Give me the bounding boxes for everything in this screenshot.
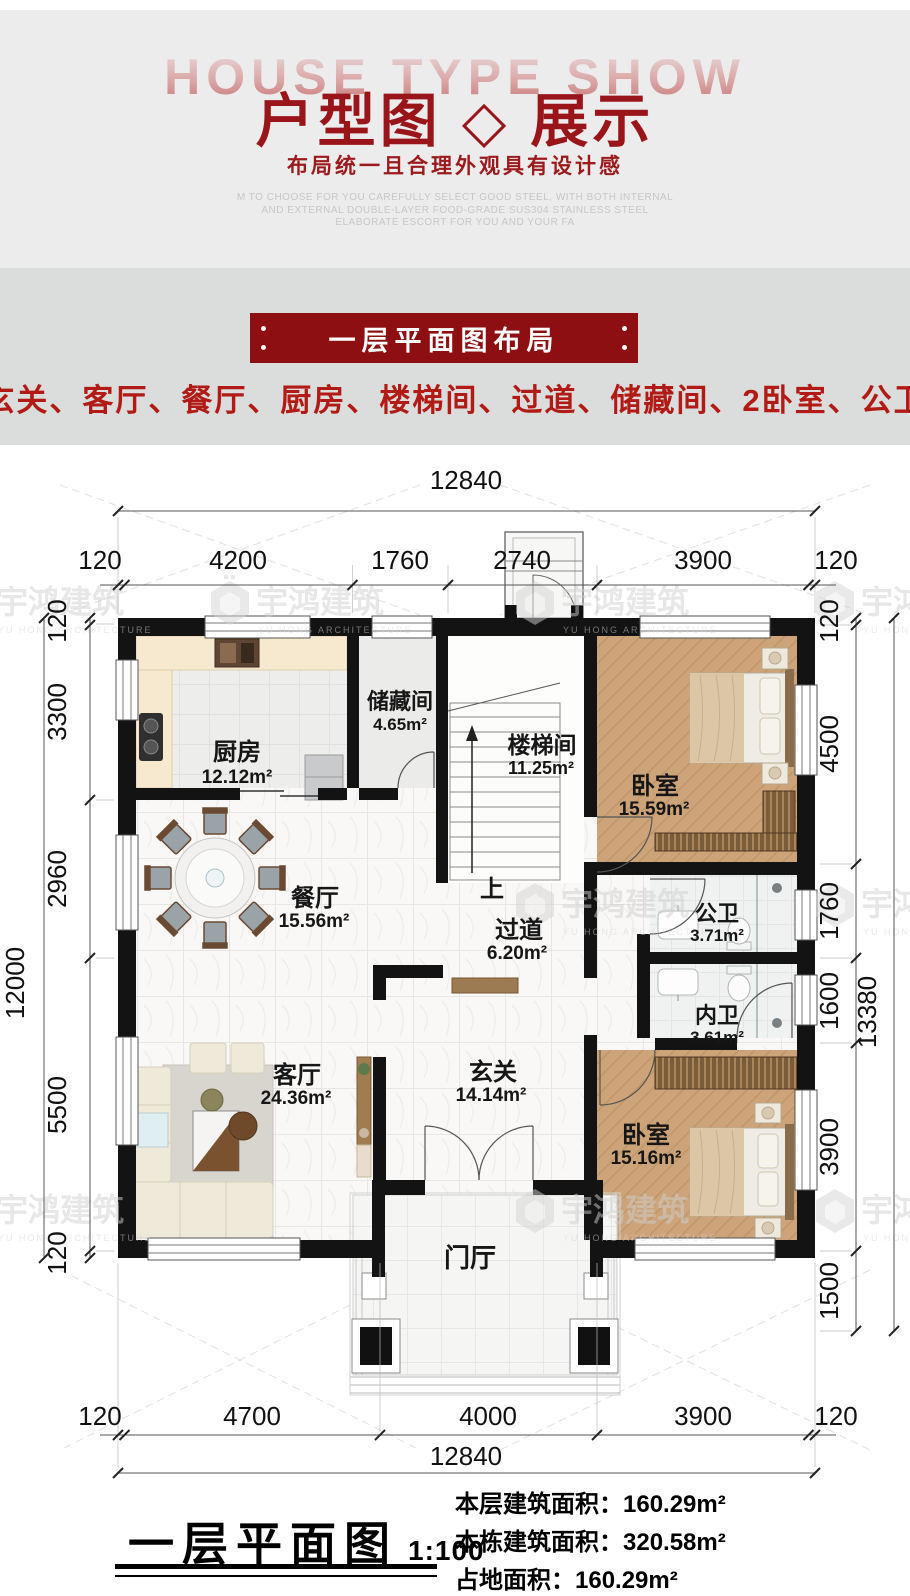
title-underline-thin bbox=[115, 1575, 437, 1577]
svg-text:15.56m²: 15.56m² bbox=[279, 911, 350, 932]
section-banner: 一层平面图布局 bbox=[250, 313, 638, 363]
svg-text:15.16m²: 15.16m² bbox=[611, 1148, 682, 1169]
banner-dot bbox=[622, 326, 627, 331]
window bbox=[116, 835, 138, 930]
svg-text:YU HONG ARCHITECTURE: YU HONG ARCHITECTURE bbox=[563, 1233, 718, 1243]
svg-text:卧室: 卧室 bbox=[622, 1121, 670, 1149]
section-band: 一层平面图布局 门厅、玄关、客厅、餐厅、厨房、楼梯间、过道、储藏间、2卧室、公卫… bbox=[0, 268, 910, 445]
svg-text:门厅: 门厅 bbox=[444, 1243, 496, 1273]
svg-text:YU HONG ARCHITECTURE: YU HONG ARCHITECTURE bbox=[863, 927, 910, 937]
stat-land-area: 占地面积：160.29m² bbox=[455, 1562, 726, 1596]
stair-up-label: 上 bbox=[480, 876, 504, 903]
page-subtitle: 布局统一且合理外观具有设计感 bbox=[0, 150, 910, 180]
room-label-porch: 门厅 bbox=[444, 1243, 496, 1273]
svg-text:内卫: 内卫 bbox=[695, 1003, 739, 1028]
room-list-wrap: 门厅、玄关、客厅、餐厅、厨房、楼梯间、过道、储藏间、2卧室、公卫、内卫 bbox=[0, 378, 910, 424]
shower-head bbox=[772, 1018, 782, 1028]
dim-left: 120 3300 2960 5500 120 12000 bbox=[0, 599, 95, 1274]
svg-text:宇鸿建筑: 宇鸿建筑 bbox=[861, 886, 910, 922]
watermark: 宇鸿建筑 YU HONG ARCHITECTURE bbox=[816, 1189, 910, 1243]
dim-top: 12840 120 4200 1760 2740 3900 120 bbox=[78, 465, 857, 590]
svg-text:6.20m²: 6.20m² bbox=[487, 943, 547, 964]
svg-text:120: 120 bbox=[42, 599, 72, 642]
svg-text:YU HONG ARCHITECTURE: YU HONG ARCHITECTURE bbox=[0, 1233, 153, 1243]
svg-text:宇鸿建筑: 宇鸿建筑 bbox=[561, 886, 689, 922]
svg-text:过道: 过道 bbox=[495, 916, 543, 944]
room-list: 门厅、玄关、客厅、餐厅、厨房、楼梯间、过道、储藏间、2卧室、公卫、内卫 bbox=[0, 378, 910, 424]
desc-line-1: M TO CHOOSE FOR YOU CAREFULLY SELECT GOO… bbox=[0, 192, 910, 205]
porch-column bbox=[360, 1327, 392, 1365]
room-label-storage: 储藏间 4.65m² bbox=[367, 689, 433, 734]
side-table bbox=[136, 1113, 168, 1147]
svg-text:120: 120 bbox=[78, 545, 121, 575]
plan-name: 一层平面图 bbox=[128, 1518, 398, 1570]
watermark: 宇鸿建筑 YU HONG ARCHITECTURE bbox=[0, 584, 153, 635]
dining-furniture bbox=[145, 808, 285, 948]
svg-text:宇鸿建筑: 宇鸿建筑 bbox=[861, 584, 910, 620]
floor-plan-svg: 宇鸿建筑 YU HONG ARCHITECTURE 宇鸿建筑 YU HONG A… bbox=[0, 445, 910, 1480]
svg-text:4000: 4000 bbox=[459, 1401, 517, 1431]
ottoman bbox=[190, 1043, 226, 1073]
svg-text:宇鸿建筑: 宇鸿建筑 bbox=[561, 1192, 689, 1228]
top-strip bbox=[0, 0, 910, 10]
svg-text:YU HONG ARCHITECTURE: YU HONG ARCHITECTURE bbox=[863, 1233, 910, 1243]
desc-line-3: ELABORATE ESCORT FOR YOU AND YOUR FA bbox=[0, 217, 910, 230]
shower-head bbox=[772, 883, 782, 893]
svg-text:客厅: 客厅 bbox=[273, 1061, 321, 1089]
svg-text:12000: 12000 bbox=[0, 947, 30, 1019]
dim-bottom: 120 4700 4000 3900 120 12840 bbox=[78, 1401, 857, 1478]
english-description: M TO CHOOSE FOR YOU CAREFULLY SELECT GOO… bbox=[0, 192, 910, 230]
room-label-stairwell: 楼梯间 11.25m² bbox=[508, 732, 577, 778]
svg-text:3300: 3300 bbox=[42, 683, 72, 741]
wardrobe bbox=[655, 1057, 797, 1089]
svg-text:卧室: 卧室 bbox=[631, 772, 679, 800]
svg-text:3900: 3900 bbox=[674, 1401, 732, 1431]
svg-text:玄关: 玄关 bbox=[469, 1058, 517, 1086]
svg-text:120: 120 bbox=[814, 599, 844, 642]
svg-text:宇鸿建筑: 宇鸿建筑 bbox=[561, 584, 689, 620]
svg-text:YU HONG ARCHITECTURE: YU HONG ARCHITECTURE bbox=[563, 625, 718, 635]
footer: 一层平面图1:100 本层建筑面积：160.29m² 本栋建筑面积：320.58… bbox=[0, 1480, 910, 1596]
svg-text:YU HONG ARCHITECTURE: YU HONG ARCHITECTURE bbox=[0, 625, 153, 635]
area-stats: 本层建筑面积：160.29m² 本栋建筑面积：320.58m² 占地面积：160… bbox=[455, 1486, 726, 1596]
svg-text:宇鸿建筑: 宇鸿建筑 bbox=[0, 1192, 124, 1228]
svg-text:厨房: 厨房 bbox=[213, 738, 261, 766]
entry-console bbox=[452, 978, 518, 993]
wardrobe bbox=[763, 791, 795, 833]
svg-text:3.61m²: 3.61m² bbox=[690, 1028, 744, 1047]
banner-dot bbox=[261, 326, 266, 331]
svg-text:3900: 3900 bbox=[814, 1118, 844, 1176]
svg-text:11.25m²: 11.25m² bbox=[508, 758, 574, 778]
svg-text:15.59m²: 15.59m² bbox=[619, 799, 690, 820]
banner-dot bbox=[261, 345, 266, 350]
poster-page: HOUSE TYPE SHOW 户型图 ◇ 展示 布局统一且合理外观具有设计感 … bbox=[0, 0, 910, 1596]
header: HOUSE TYPE SHOW 户型图 ◇ 展示 布局统一且合理外观具有设计感 … bbox=[0, 0, 910, 268]
svg-text:12840: 12840 bbox=[430, 1441, 502, 1471]
svg-text:宇鸿建筑: 宇鸿建筑 bbox=[861, 1192, 910, 1228]
svg-text:120: 120 bbox=[814, 545, 857, 575]
svg-text:3900: 3900 bbox=[674, 545, 732, 575]
room-label-hallway: 过道 6.20m² bbox=[487, 916, 547, 964]
svg-text:120: 120 bbox=[78, 1401, 121, 1431]
svg-text:14.14m²: 14.14m² bbox=[456, 1085, 527, 1106]
page-title: 户型图 ◇ 展示 bbox=[0, 74, 910, 158]
svg-text:储藏间: 储藏间 bbox=[367, 689, 433, 714]
svg-text:4.65m²: 4.65m² bbox=[373, 715, 427, 734]
svg-text:宇鸿建筑: 宇鸿建筑 bbox=[256, 584, 384, 620]
svg-text:5500: 5500 bbox=[42, 1076, 72, 1134]
desc-line-2: AND EXTERNAL DOUBLE-LAYER FOOD-GRADE SUS… bbox=[0, 205, 910, 218]
wardrobe bbox=[655, 833, 797, 851]
banner-dot bbox=[622, 345, 627, 350]
svg-text:YU HONG ARCHITECTURE: YU HONG ARCHITECTURE bbox=[258, 625, 413, 635]
svg-text:餐厅: 餐厅 bbox=[291, 885, 339, 912]
window bbox=[148, 1238, 300, 1260]
svg-text:楼梯间: 楼梯间 bbox=[508, 732, 577, 758]
ottoman bbox=[231, 1043, 264, 1073]
svg-text:12.12m²: 12.12m² bbox=[202, 767, 273, 788]
window bbox=[116, 1037, 138, 1145]
room-label-ensuite-bath: 内卫 3.61m² bbox=[690, 1003, 744, 1047]
svg-text:1500: 1500 bbox=[814, 1262, 844, 1320]
room-label-public-bath: 公卫 3.71m² bbox=[690, 901, 744, 945]
svg-text:13380: 13380 bbox=[852, 976, 882, 1048]
svg-text:24.36m²: 24.36m² bbox=[261, 1088, 332, 1109]
svg-text:2740: 2740 bbox=[493, 545, 551, 575]
svg-text:4500: 4500 bbox=[814, 715, 844, 773]
banner-label: 一层平面图布局 bbox=[329, 319, 560, 358]
porch-column bbox=[578, 1327, 610, 1365]
svg-text:1760: 1760 bbox=[814, 882, 844, 940]
svg-text:4200: 4200 bbox=[209, 545, 267, 575]
svg-text:1600: 1600 bbox=[814, 972, 844, 1030]
floor-plan-figure: 宇鸿建筑 YU HONG ARCHITECTURE 宇鸿建筑 YU HONG A… bbox=[0, 445, 910, 1480]
svg-text:12840: 12840 bbox=[430, 465, 502, 495]
window bbox=[116, 660, 138, 720]
toilet bbox=[728, 975, 750, 1001]
stairs bbox=[448, 683, 560, 880]
sink bbox=[658, 969, 698, 995]
stat-building-area: 本栋建筑面积：320.58m² bbox=[455, 1524, 726, 1562]
title-underline-thick bbox=[115, 1564, 437, 1569]
svg-text:3.71m²: 3.71m² bbox=[690, 926, 744, 945]
svg-text:2960: 2960 bbox=[42, 850, 72, 908]
svg-text:1760: 1760 bbox=[371, 545, 429, 575]
svg-text:YU HONG ARCHITECTURE: YU HONG ARCHITECTURE bbox=[863, 625, 910, 635]
svg-text:4700: 4700 bbox=[223, 1401, 281, 1431]
svg-text:120: 120 bbox=[814, 1401, 857, 1431]
stat-floor-area: 本层建筑面积：160.29m² bbox=[455, 1486, 726, 1524]
svg-text:公卫: 公卫 bbox=[695, 901, 739, 926]
svg-text:120: 120 bbox=[42, 1231, 72, 1274]
